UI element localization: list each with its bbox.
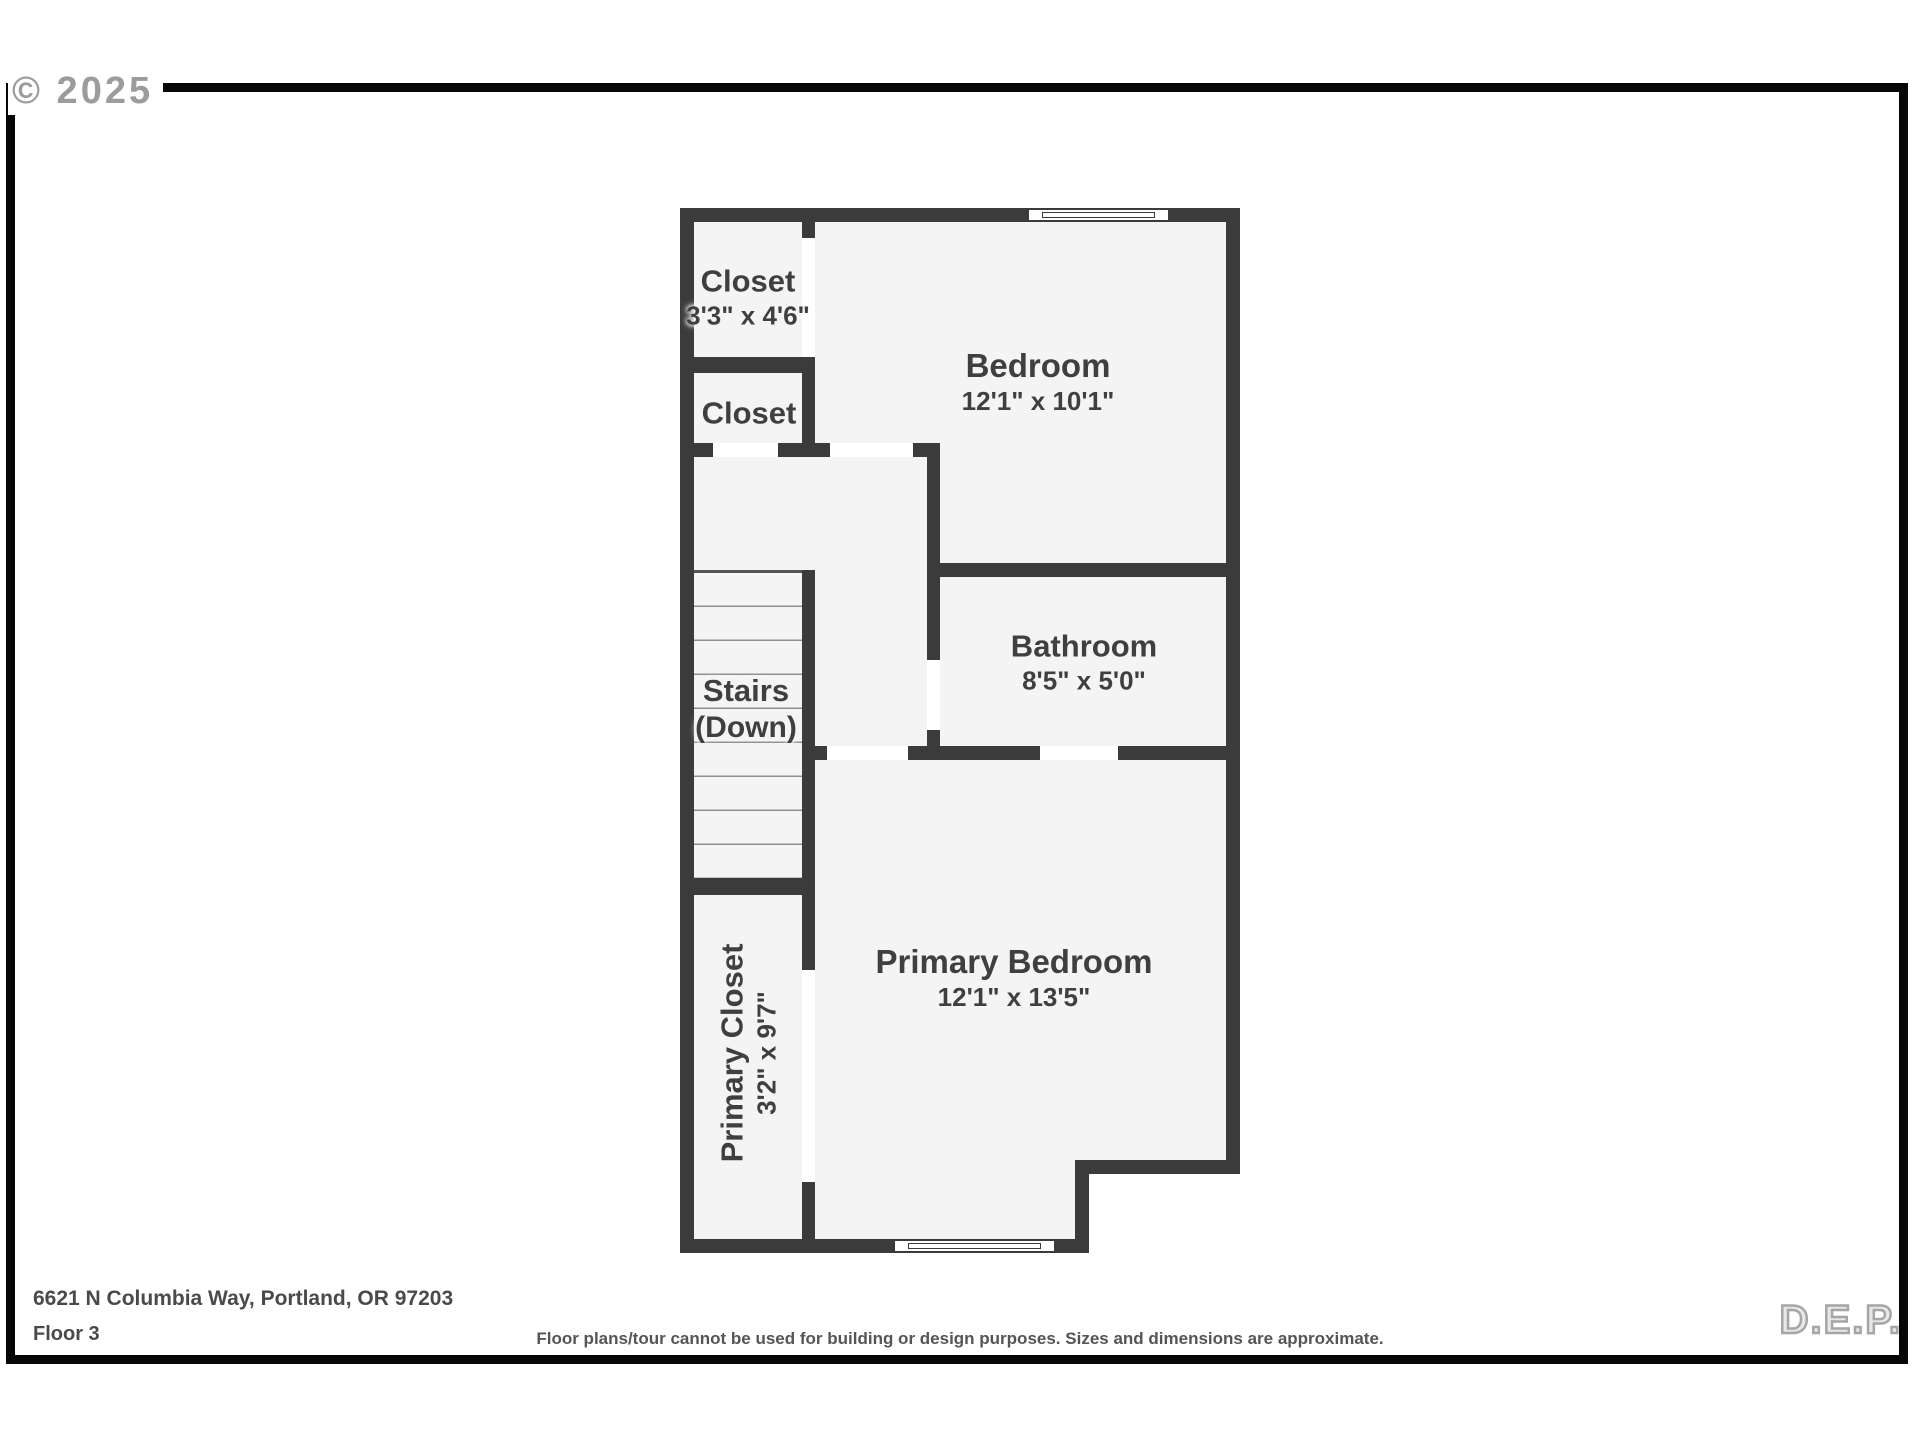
wall-hall-top-b (778, 443, 830, 457)
room-label-closet-top: Closet 3'3" x 4'6" (686, 263, 810, 330)
wall-primary-closet-right-lower (802, 1182, 815, 1253)
room-label-bathroom: Bathroom 8'5" x 5'0" (1011, 628, 1157, 695)
room-name: Closet (686, 263, 810, 300)
wall-notch-horizontal (1075, 1160, 1240, 1174)
room-name: Bathroom (1011, 628, 1157, 665)
room-name: Stairs (695, 673, 797, 710)
wall-stairs-right (802, 570, 815, 895)
room-label-closet-mid: Closet (702, 396, 797, 433)
room-label-primary-bedroom: Primary Bedroom 12'1" x 13'5" (876, 943, 1153, 1013)
floor-plan-page: © 2025 Closet 3'3" x 4'6" Closet (0, 0, 1920, 1440)
room-label-primary-closet: Primary Closet 3'2" x 9'7" (714, 944, 781, 1163)
window-pane (1042, 212, 1155, 218)
wall-bath-bottom-c (1118, 746, 1226, 760)
room-dims: 3'2" x 9'7" (751, 944, 782, 1163)
room-name: Primary Closet (714, 944, 751, 1163)
wall-closets-right-upper (802, 208, 815, 238)
wall-bedroom-bottom (940, 563, 1240, 577)
room-dims: 3'3" x 4'6" (686, 300, 810, 331)
wall-closets-right-lower (802, 357, 815, 457)
wall-stairs-bottom (680, 878, 815, 895)
window-bedroom (1029, 208, 1168, 222)
room-name: Bedroom (962, 347, 1115, 386)
room-dims: 8'5" x 5'0" (1011, 665, 1157, 696)
wall-primary-closet-right-upper (802, 895, 815, 970)
wall-closet-top-bottom (680, 357, 815, 373)
door-opening-bedroom (830, 443, 913, 457)
wall-bathroom-left-upper (927, 443, 940, 660)
disclaimer-text: Floor plans/tour cannot be used for buil… (0, 1329, 1920, 1349)
room-dims: 12'1" x 10'1" (962, 386, 1115, 417)
door-opening-bathroom-hall (927, 660, 940, 730)
window-pane (908, 1243, 1041, 1249)
room-label-stairs: Stairs (Down) (695, 673, 797, 745)
wall-hall-top-a (680, 443, 713, 457)
property-address: 6621 N Columbia Way, Portland, OR 97203 (33, 1287, 453, 1311)
wall-outer-right (1226, 208, 1240, 1174)
wall-bath-bottom-b (908, 746, 1040, 760)
copyright-watermark: © 2025 (8, 70, 163, 115)
room-name: Closet (702, 396, 797, 433)
door-opening-bathroom-primary (1040, 746, 1118, 760)
room-name: Primary Bedroom (876, 943, 1153, 982)
room-sub: (Down) (695, 710, 797, 745)
door-opening-closet-mid (713, 443, 778, 457)
room-label-bedroom: Bedroom 12'1" x 10'1" (962, 347, 1115, 417)
door-opening-primary-bedroom (827, 746, 908, 760)
room-dims: 12'1" x 13'5" (876, 982, 1153, 1013)
door-opening-primary-closet (802, 970, 815, 1182)
window-primary-bedroom (895, 1239, 1054, 1253)
wall-bath-bottom-a (815, 746, 827, 760)
dep-watermark: D.E.P. (1780, 1298, 1902, 1343)
